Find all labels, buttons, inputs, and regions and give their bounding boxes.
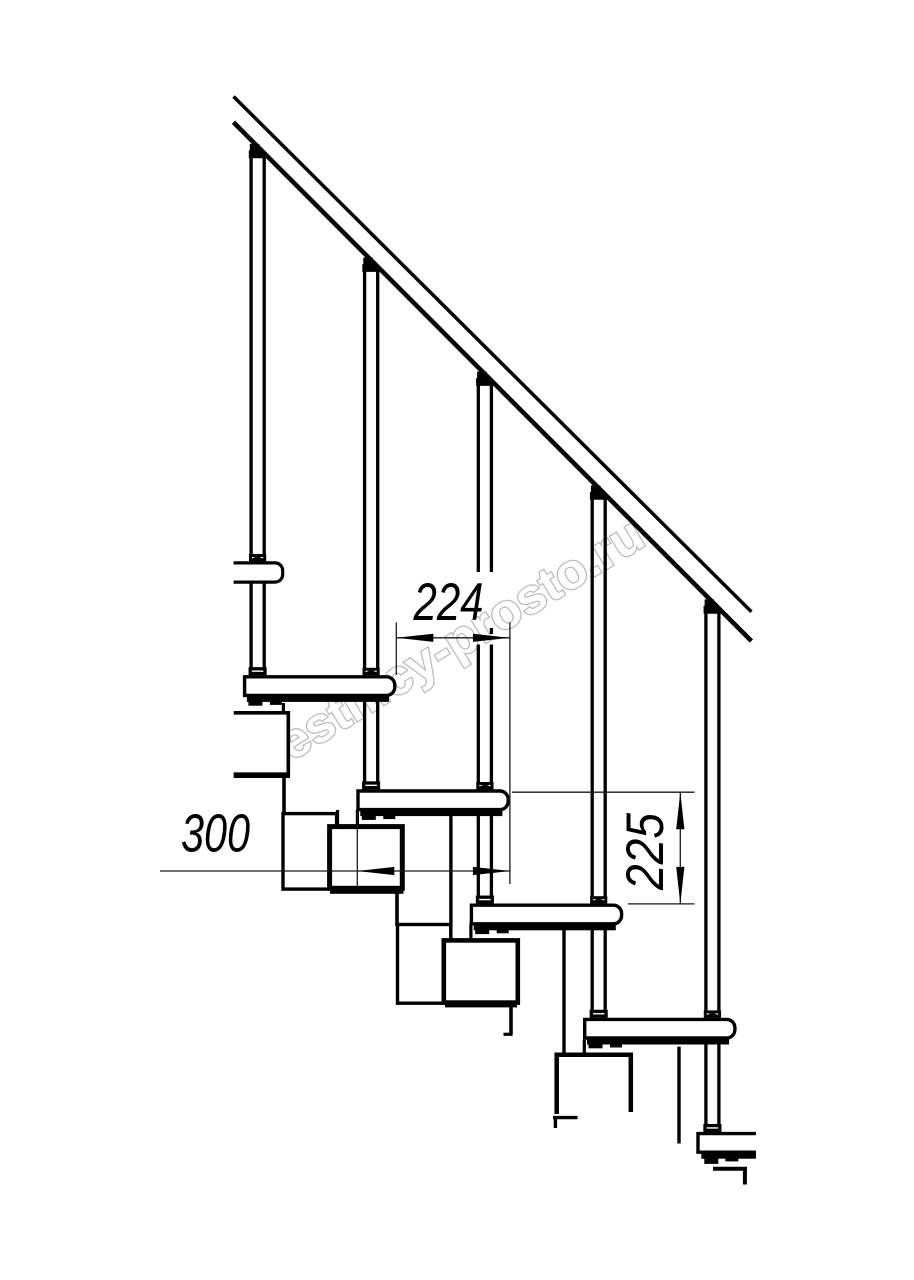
svg-text:224: 224 <box>413 573 484 632</box>
svg-text:300: 300 <box>181 804 250 864</box>
svg-text:225: 225 <box>616 813 675 891</box>
